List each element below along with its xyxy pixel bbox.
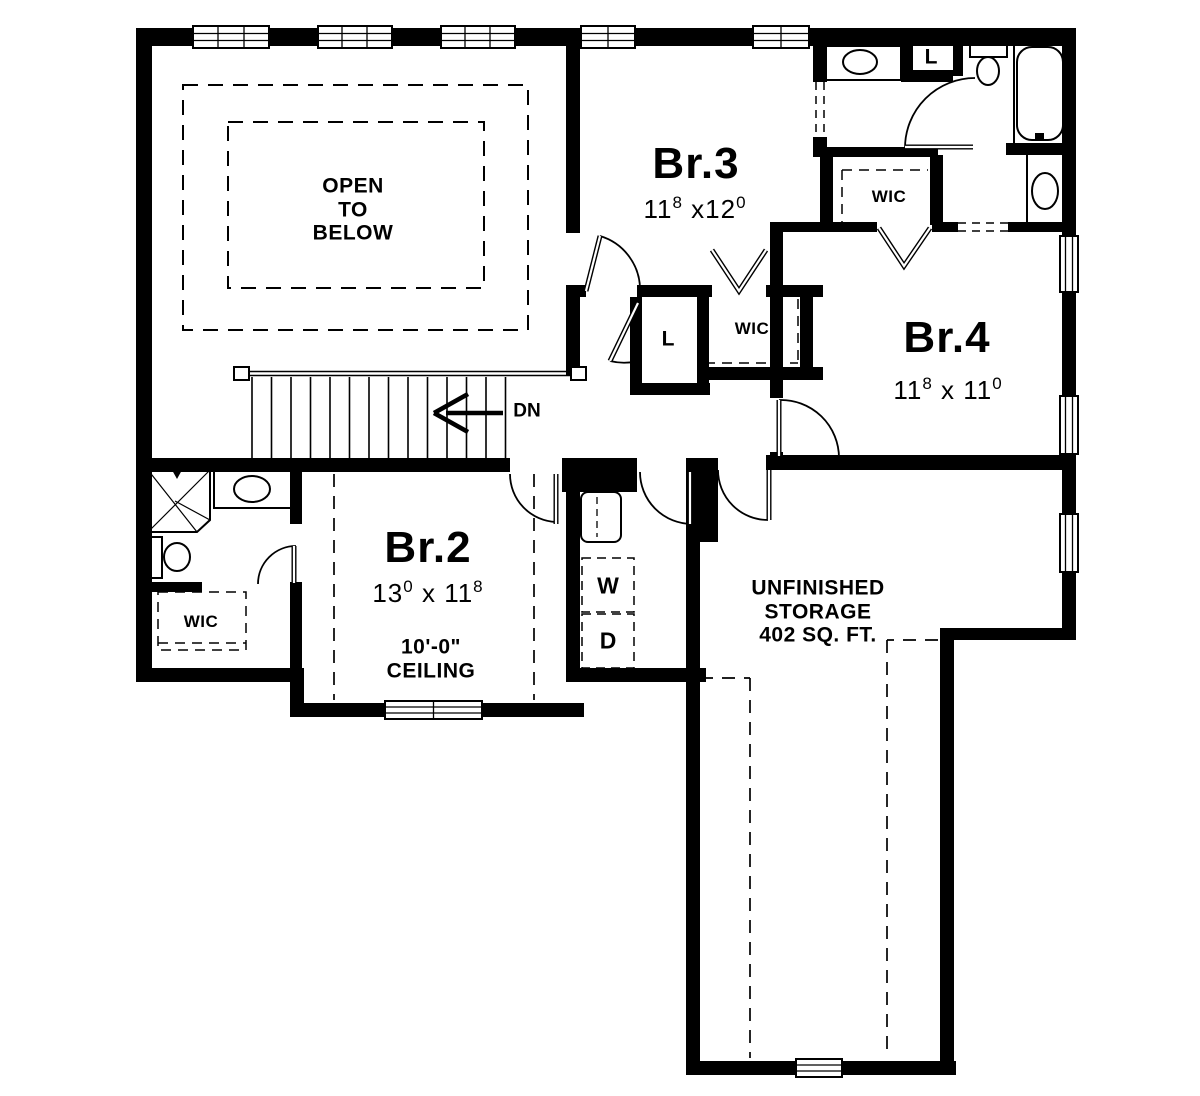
- window-right-1: [1060, 236, 1078, 292]
- linen-bath-label: L: [925, 47, 938, 70]
- window-right-2: [1060, 396, 1078, 454]
- wic-br4-label: WIC: [872, 188, 907, 206]
- window-storage: [796, 1059, 842, 1077]
- tub-faucet-icon: [1035, 133, 1044, 139]
- dn-label: DN: [513, 402, 540, 423]
- stair-newel-right: [571, 367, 586, 380]
- shower-head-icon: [172, 470, 182, 479]
- washer-label: W: [597, 574, 619, 599]
- bathtub: [1017, 47, 1063, 140]
- door-arc-storage: [718, 470, 768, 520]
- window-top-4: [581, 26, 635, 48]
- wic-left-label: WIC: [184, 613, 219, 631]
- toilet-left: [147, 537, 190, 578]
- floor-plan-drawing: [0, 0, 1200, 1096]
- storage-attic-line-left: [700, 678, 750, 1058]
- window-top-3: [441, 26, 515, 48]
- vanity-sink-top: [820, 46, 901, 80]
- br2-name: Br.2: [384, 524, 471, 572]
- stair-newel-left: [234, 367, 249, 380]
- br2-dims: 130 x 118: [372, 579, 483, 607]
- laundry-cabinet: [581, 492, 621, 542]
- br3-dims: 118 x120: [643, 195, 746, 223]
- down-arrow-icon: [434, 394, 503, 432]
- door-arc-bath-left: [258, 546, 296, 584]
- bifold-wic-br4: [879, 228, 930, 266]
- window-br2: [385, 701, 482, 719]
- opening-bath-hall: [816, 82, 824, 137]
- toilet-wc: [1032, 173, 1058, 209]
- dryer-label: D: [600, 629, 617, 654]
- wic-br3-label: WIC: [735, 320, 770, 338]
- br4-dims: 118 x 110: [893, 376, 1002, 404]
- floor-plan: OPEN TO BELOW Br.3 118 x120 Br.4 118 x 1…: [0, 0, 1200, 1096]
- open-to-below-label: OPEN TO BELOW: [313, 175, 394, 246]
- window-top-1: [193, 26, 269, 48]
- vanity-sink-left: [214, 470, 292, 508]
- opening-wc: [958, 223, 1008, 231]
- toilet-top: [970, 42, 1007, 85]
- door-arc-br4: [779, 400, 839, 458]
- storage-label: UNFINISHED STORAGE 402 SQ. FT.: [751, 577, 884, 648]
- door-arc-br3: [600, 236, 640, 291]
- window-right-3: [1060, 514, 1078, 572]
- linen-hall-label: L: [662, 329, 675, 352]
- br4-name: Br.4: [903, 314, 990, 362]
- window-top-5: [753, 26, 809, 48]
- br3-name: Br.3: [652, 140, 739, 188]
- door-arc-laundry: [640, 472, 692, 524]
- br2-ceiling-label: 10'-0" CEILING: [387, 635, 476, 682]
- window-top-2: [318, 26, 392, 48]
- door-arc-br2: [510, 474, 556, 522]
- storage-attic-line-right: [887, 640, 938, 1058]
- door-arc-linen-hall: [610, 361, 638, 363]
- shower: [148, 470, 210, 532]
- bifold-wic-br3: [712, 250, 766, 291]
- door-arc-bath-right: [905, 78, 975, 148]
